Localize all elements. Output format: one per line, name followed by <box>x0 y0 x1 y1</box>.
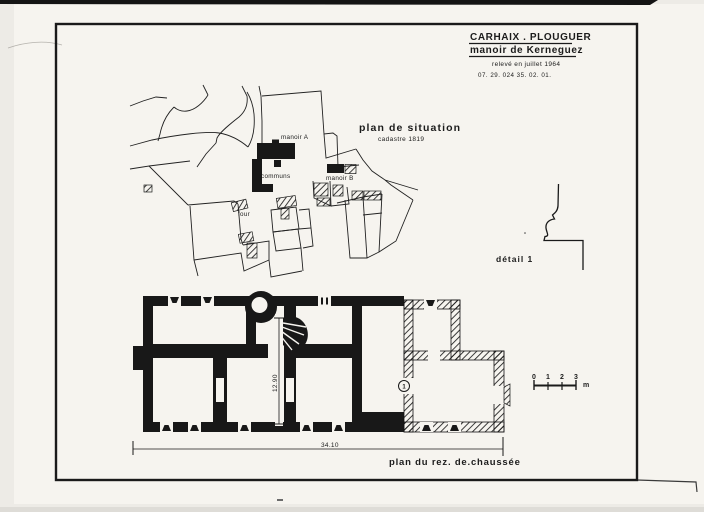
wing-mid-wall <box>404 351 504 360</box>
west-wall <box>143 296 153 432</box>
fireplace-niche <box>216 378 224 402</box>
monument-title: manoir de Kerneguez <box>470 45 583 56</box>
window-mullion <box>321 298 323 305</box>
width-dimension-value: 34.10 <box>321 442 339 449</box>
detail-caption: détail 1 <box>496 254 533 264</box>
scale-label-0: 0 <box>532 374 536 381</box>
commune-title: CARHAIX . PLOUGUER <box>470 32 592 43</box>
south-wall <box>143 422 404 432</box>
outbuilding-hatched <box>314 183 328 196</box>
scale-label-2: 2 <box>560 374 564 381</box>
window-opening <box>493 386 505 404</box>
outbuilding-hatched <box>333 185 343 196</box>
window-mullion <box>326 298 328 305</box>
photographed-survey-sheet: CARHAIX . PLOUGUER manoir de Kerneguez r… <box>0 0 704 512</box>
depth-dimension-value: 12.90 <box>272 374 279 392</box>
speck <box>277 499 283 501</box>
fireplace-niche <box>286 378 294 402</box>
cross-wall-hall <box>352 296 362 422</box>
outbuilding-hatched <box>352 191 363 200</box>
scale-label-3: 3 <box>574 374 578 381</box>
label-manoir-b: manoir B <box>326 175 354 182</box>
tower-interior <box>252 297 268 313</box>
survey-date-note: relevé en juillet 1964 <box>492 61 560 68</box>
outbuilding-hatched <box>364 191 381 200</box>
spine-wall-left <box>143 344 268 358</box>
inventory-reference: 07. 29. 024 35. 02. 01. <box>478 72 551 79</box>
west-chimney-projection <box>133 346 143 370</box>
window-outer-sill <box>504 384 510 406</box>
detail-reference-marker: 1 <box>399 381 410 392</box>
label-communs: communs <box>261 173 290 180</box>
film-edge-bottom <box>0 507 704 512</box>
floor-plan-caption: plan du rez. de.chaussée <box>389 457 521 468</box>
scale-label-1: 1 <box>546 374 550 381</box>
drawing-canvas: CARHAIX . PLOUGUER manoir de Kerneguez r… <box>0 0 704 512</box>
outbuilding-hatched <box>144 185 152 192</box>
window-opening <box>318 296 331 306</box>
hall-south-wall <box>362 412 404 422</box>
label-manoir-a: manoir A <box>281 134 309 141</box>
building-manoir-b <box>327 164 344 173</box>
building-annex <box>274 160 281 167</box>
label-four: four <box>238 211 250 218</box>
outbuilding-hatched <box>247 243 257 258</box>
wing-west-wall <box>404 300 413 432</box>
door-opening <box>428 350 440 361</box>
building-manoir-b-hatched <box>345 165 356 174</box>
site-plan-title: plan de situation <box>359 122 461 134</box>
ink-dot <box>524 232 526 234</box>
scale-unit: m <box>583 382 589 389</box>
outbuilding-hatched <box>281 208 289 219</box>
outbuilding-hatched <box>317 198 330 206</box>
site-plan-subtitle: cadastre 1819 <box>378 136 424 143</box>
